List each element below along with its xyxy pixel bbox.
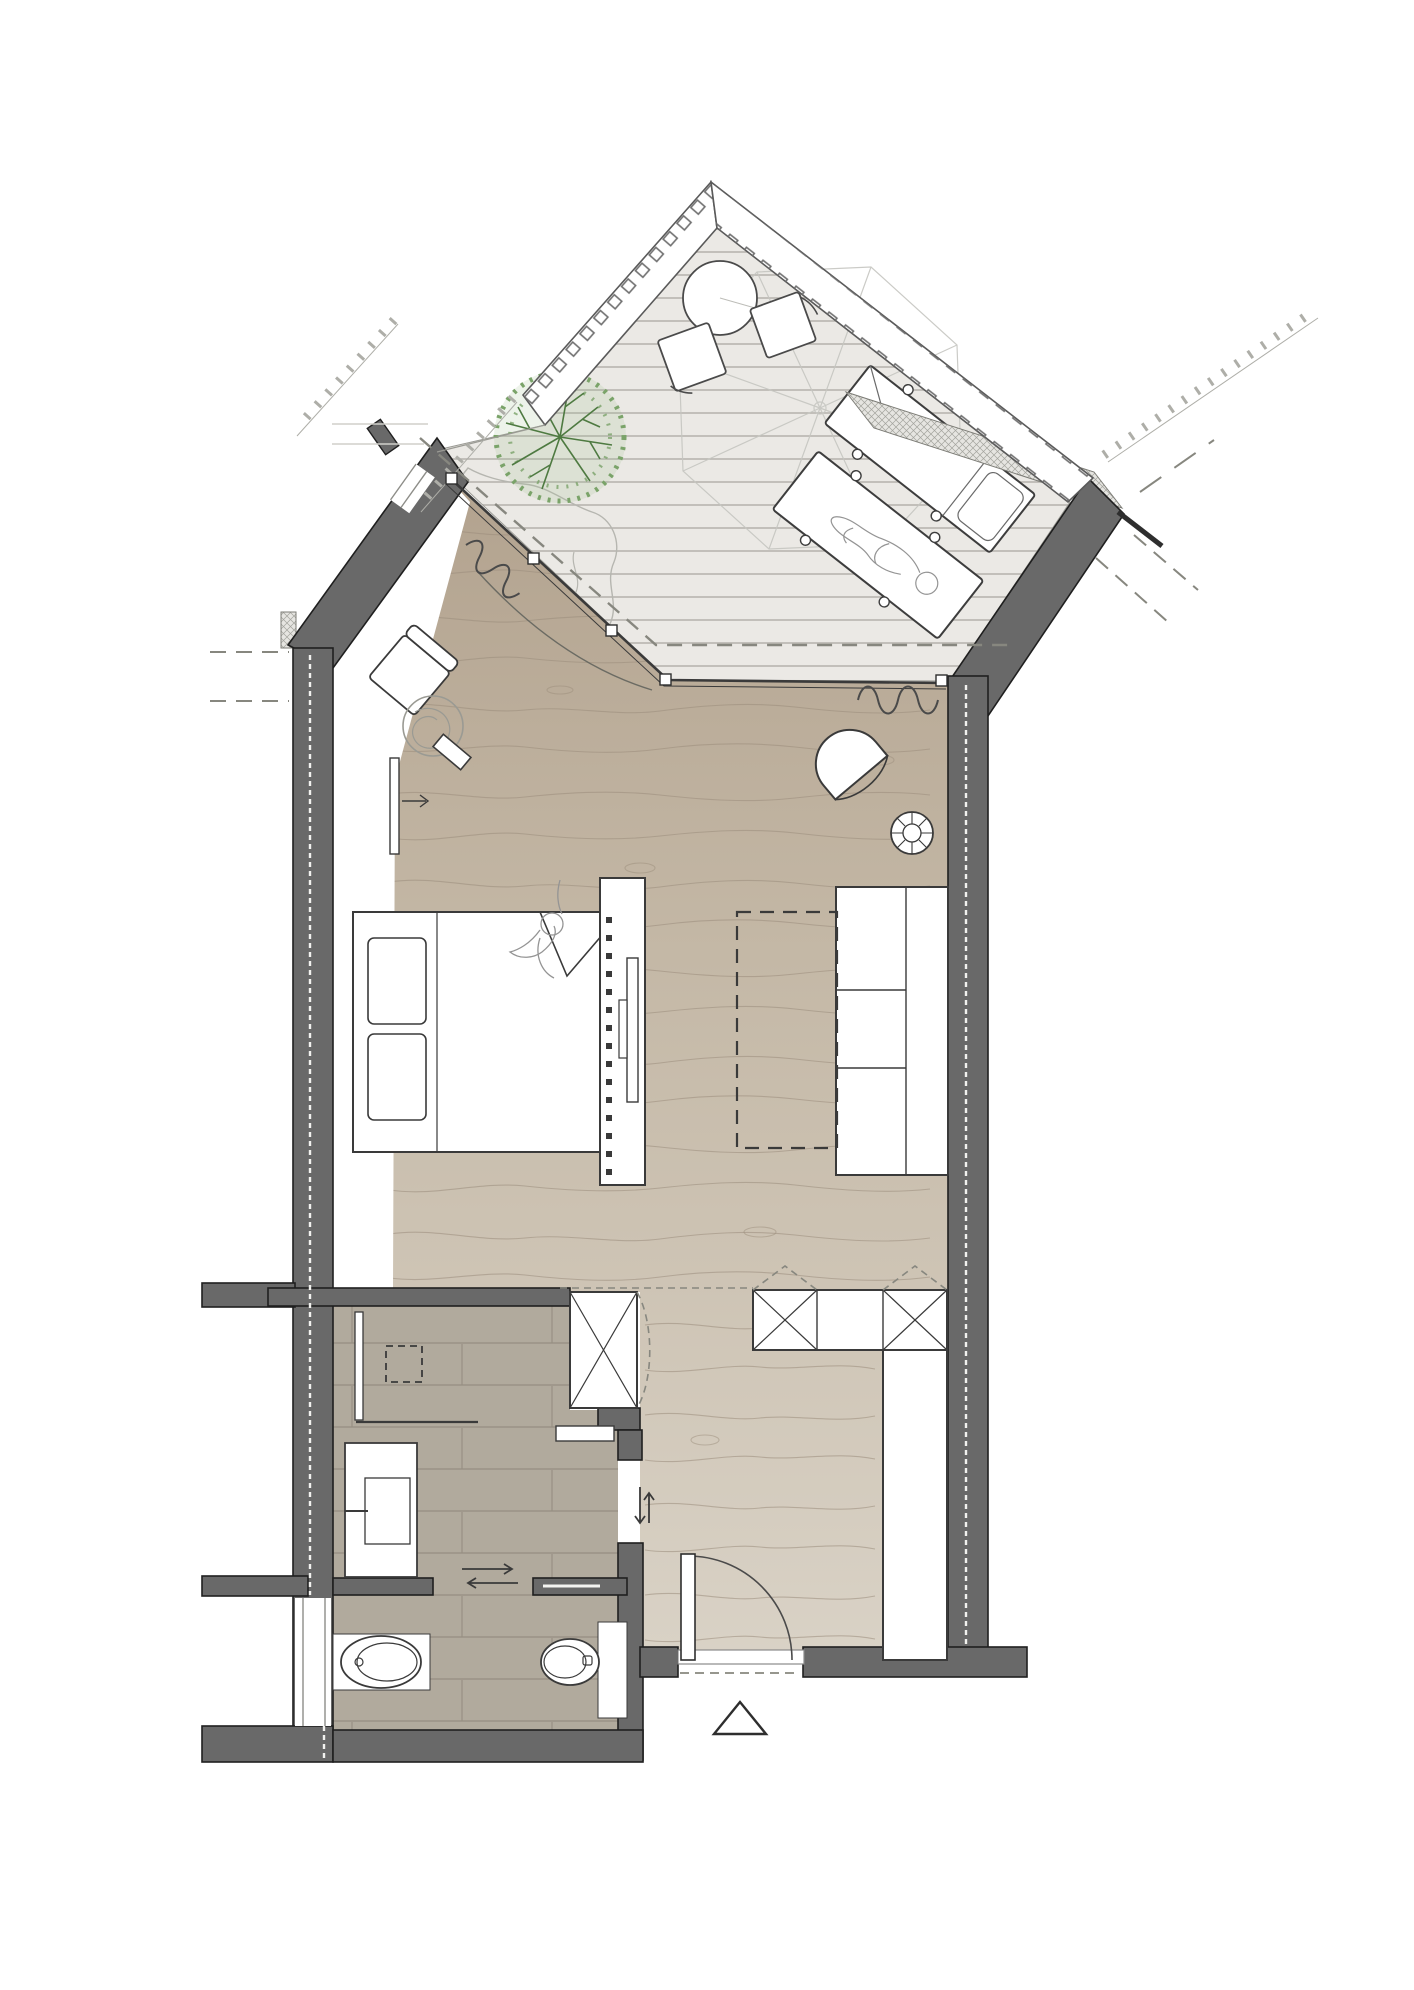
wall-stub-left-2 <box>202 1576 308 1596</box>
wall-bathroom-south <box>333 1730 643 1762</box>
wall-entry-jamb <box>640 1647 678 1677</box>
wardrobe-band <box>753 1290 947 1350</box>
toilet <box>333 1634 430 1690</box>
door-leaf <box>681 1554 695 1660</box>
wall-shelf <box>556 1426 614 1441</box>
wall-corner-sw <box>202 1726 333 1762</box>
bath-door-tile <box>433 1578 533 1595</box>
shower-glass-panel <box>355 1312 363 1420</box>
tv-screen <box>627 958 638 1102</box>
tv-partition <box>600 878 645 1185</box>
wardrobe-x-left <box>570 1292 637 1408</box>
tall-closet <box>883 1350 947 1660</box>
wall-right <box>948 676 988 1651</box>
double-bed <box>353 912 603 1152</box>
sofa <box>836 887 948 1175</box>
railing-ticks-ne <box>1104 312 1312 455</box>
threshold <box>678 1650 804 1664</box>
pillow <box>368 1034 426 1120</box>
floor-plan-drawing <box>0 0 1414 1990</box>
wall-partition-a <box>333 1578 433 1595</box>
pillow <box>368 938 426 1024</box>
wall-entry-bath-post <box>618 1430 642 1460</box>
entrance-triangle-marker <box>714 1702 766 1734</box>
railing-ticks-nw <box>301 320 394 423</box>
wall-bathroom-top <box>268 1288 570 1306</box>
tv-bracket <box>619 1000 627 1058</box>
pouf <box>891 812 933 854</box>
vanity-sink <box>345 1443 417 1577</box>
window-left <box>295 1598 331 1726</box>
floor-plan <box>0 0 1414 1990</box>
